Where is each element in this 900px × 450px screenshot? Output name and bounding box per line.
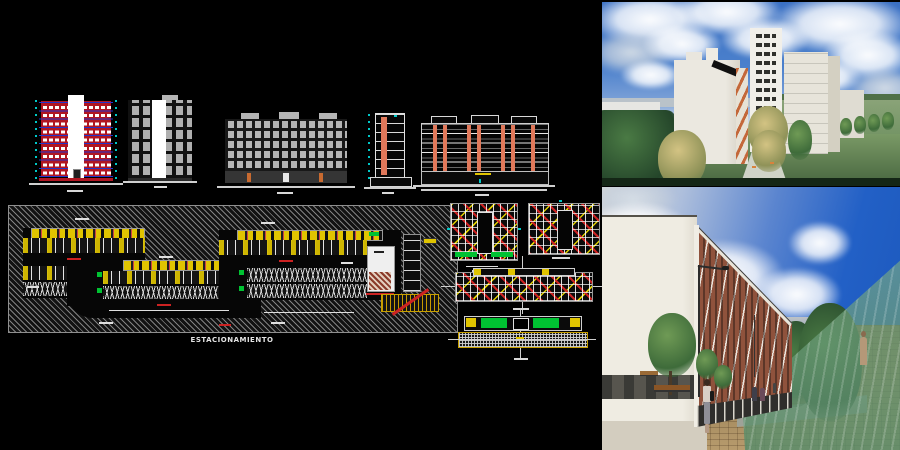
lane-mark xyxy=(67,258,81,260)
tree xyxy=(882,112,894,130)
core-corridor xyxy=(557,210,573,250)
typical-floor-plan-b xyxy=(528,203,600,255)
tree xyxy=(788,120,812,160)
level-mark xyxy=(261,222,275,224)
ground-line xyxy=(364,187,416,189)
bench-orange xyxy=(752,166,756,168)
drawing-caption-mark xyxy=(277,192,293,194)
planter xyxy=(369,232,379,236)
parking-road-connector xyxy=(67,266,97,306)
cyan-mark xyxy=(518,228,521,230)
ramp-hatch xyxy=(369,272,391,290)
cyan-mark xyxy=(479,179,481,183)
block-section-columns xyxy=(419,117,549,193)
level-mark xyxy=(159,256,173,258)
road-edge-line xyxy=(109,310,229,311)
cad-collage-sheet: ESTACIONAMIENTO xyxy=(0,0,900,450)
tree xyxy=(752,130,786,172)
drawing-caption-mark xyxy=(514,358,528,360)
base-strip xyxy=(39,178,113,181)
planter xyxy=(239,286,244,291)
stall-row xyxy=(23,238,145,253)
pedestrian-on-terrace xyxy=(860,337,867,365)
cloud xyxy=(620,60,682,90)
drawing-caption-mark xyxy=(67,190,83,192)
lane-mark xyxy=(279,260,293,262)
drawing-caption-mark xyxy=(154,186,167,188)
bag xyxy=(710,391,714,401)
garden-strip xyxy=(491,252,513,257)
render-aerial xyxy=(602,2,900,186)
roof-stub-2 xyxy=(279,112,299,119)
car-row xyxy=(123,260,223,271)
shop-door-3 xyxy=(319,173,323,182)
planter xyxy=(97,288,102,293)
stall-row xyxy=(219,240,367,255)
corner-unit-yellow xyxy=(570,318,580,327)
yellow-datum-line xyxy=(475,173,491,175)
pedestrian xyxy=(752,387,757,401)
block-elevation-long xyxy=(225,118,347,188)
tower-elevation-gray xyxy=(128,99,192,183)
ground-line xyxy=(421,189,547,191)
stair-shaft xyxy=(68,95,84,179)
drawing-caption-mark xyxy=(382,192,394,194)
road-edge-line xyxy=(264,312,354,313)
level-mark xyxy=(271,322,285,324)
parking-plan-title: ESTACIONAMIENTO xyxy=(168,336,296,344)
level-mark xyxy=(27,286,39,288)
axis-horizontal xyxy=(448,339,596,340)
core-corridor xyxy=(477,212,493,254)
ground-line xyxy=(29,183,123,185)
street-lamp-pole xyxy=(698,265,700,397)
section-outline xyxy=(375,113,405,179)
right-slab-side-face xyxy=(828,56,840,152)
tower-section-color xyxy=(35,95,117,187)
balcony-stripe-wall xyxy=(736,68,748,164)
cloud xyxy=(788,221,852,265)
cyan-mark xyxy=(394,115,397,117)
facade xyxy=(225,119,347,171)
stall-row xyxy=(103,271,223,284)
foreground-shadow xyxy=(602,178,900,186)
level-mark-red xyxy=(219,324,231,326)
shop-door-2 xyxy=(283,173,289,182)
render-street xyxy=(602,187,900,450)
service-bays xyxy=(403,234,421,292)
typical-floor-plan-a xyxy=(450,203,518,261)
level-mark xyxy=(75,218,89,220)
tree xyxy=(868,114,880,132)
head xyxy=(704,379,710,386)
drawing-caption-mark xyxy=(513,308,529,310)
parking-floor-plan xyxy=(8,205,458,333)
bush xyxy=(714,365,732,389)
pedestrian xyxy=(760,388,765,401)
tree xyxy=(854,116,866,134)
shop-door-1 xyxy=(247,173,251,182)
cyan-mark xyxy=(559,200,562,202)
ramp-core xyxy=(367,246,395,292)
head xyxy=(861,331,866,337)
planter xyxy=(97,272,102,277)
street-lamp-head xyxy=(722,266,729,270)
drawing-caption-mark xyxy=(475,194,489,196)
parking-cluster-middle xyxy=(97,260,223,300)
angled-stalls xyxy=(247,284,367,298)
street-lamp-pole xyxy=(754,315,755,377)
dimension-ticks-left xyxy=(368,113,370,179)
level-mark xyxy=(341,262,353,264)
section-floors xyxy=(421,123,549,173)
pedestrian xyxy=(773,383,776,393)
car-mark-yellow xyxy=(423,238,437,244)
ground-line xyxy=(123,181,197,183)
dimension-line xyxy=(466,266,498,267)
level-mark xyxy=(99,322,113,324)
ground-line xyxy=(217,186,355,188)
cyan-mark xyxy=(447,228,450,230)
bench-orange xyxy=(770,162,774,164)
garden-strip xyxy=(455,252,477,257)
linear-floor-plan xyxy=(455,268,591,304)
legs xyxy=(704,402,710,424)
angled-stalls xyxy=(103,286,223,299)
narrow-section xyxy=(368,113,412,191)
podium-line xyxy=(413,185,555,187)
base-podium xyxy=(370,177,412,187)
terrace-green xyxy=(533,318,559,328)
roof-units-yellow xyxy=(473,268,575,276)
deck-hatch xyxy=(458,332,588,348)
plan-body xyxy=(455,272,593,302)
terrace-green xyxy=(481,318,507,328)
salmon-core xyxy=(381,117,387,175)
tree xyxy=(840,118,852,136)
dimension-ticks-right xyxy=(115,99,117,179)
ankles xyxy=(705,424,709,433)
dimension-ticks-left xyxy=(35,99,37,179)
bench xyxy=(640,371,658,376)
pedestrian-foreground xyxy=(700,379,714,435)
level-mark-red xyxy=(157,304,171,306)
door-mark xyxy=(374,251,384,253)
stair-shaft xyxy=(152,100,166,178)
tree xyxy=(648,313,696,377)
angled-stalls xyxy=(247,268,367,282)
room-row xyxy=(464,316,582,331)
drawing-caption-mark xyxy=(552,257,570,259)
site-strip-plan xyxy=(458,316,586,354)
planter xyxy=(239,270,244,275)
bench xyxy=(654,385,690,392)
corner-unit-yellow xyxy=(466,318,476,327)
core-black xyxy=(513,318,529,330)
